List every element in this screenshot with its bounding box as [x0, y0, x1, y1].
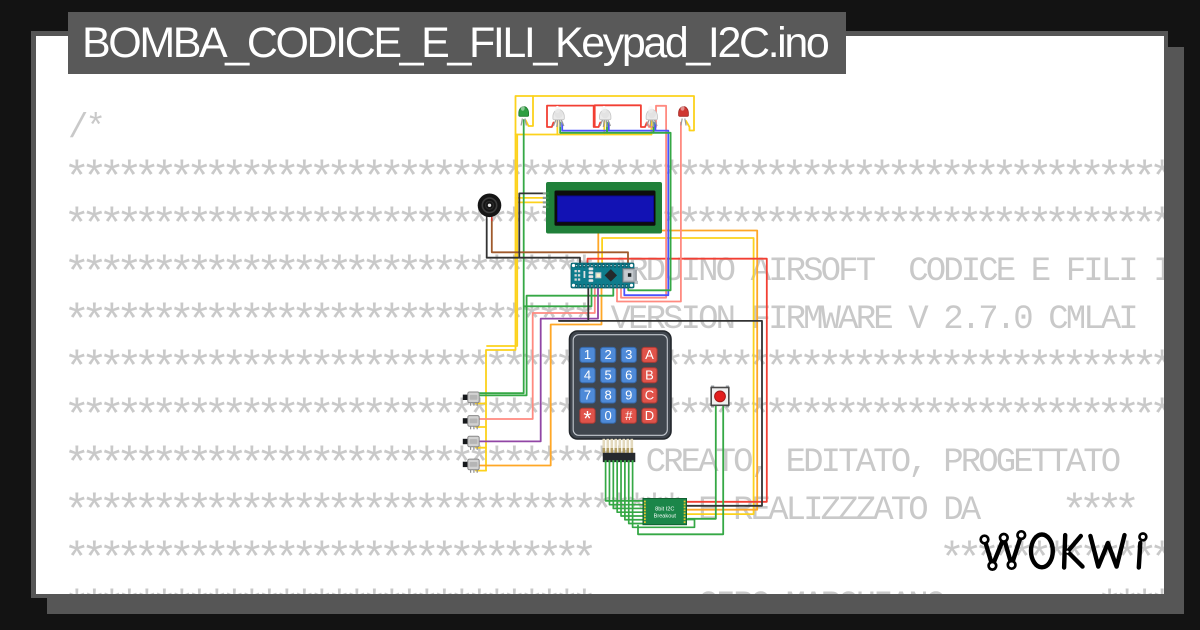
- svg-text:Breakout: Breakout: [654, 514, 677, 520]
- svg-text:3: 3: [625, 347, 632, 362]
- svg-text:D: D: [645, 408, 654, 423]
- svg-text:7: 7: [584, 388, 591, 403]
- svg-text:9: 9: [625, 388, 632, 403]
- svg-text:6: 6: [625, 367, 632, 382]
- svg-text:A: A: [645, 347, 654, 362]
- svg-text:*: *: [583, 408, 591, 431]
- svg-text:2: 2: [605, 347, 612, 362]
- svg-text:0: 0: [605, 408, 612, 423]
- svg-text:1: 1: [584, 347, 591, 362]
- svg-text:8bit I2C: 8bit I2C: [655, 507, 674, 513]
- svg-text:B: B: [645, 367, 654, 382]
- svg-text:8: 8: [605, 388, 612, 403]
- svg-text:#: #: [625, 408, 633, 423]
- svg-text:C: C: [645, 388, 654, 403]
- svg-text:5: 5: [605, 367, 612, 382]
- svg-text:4: 4: [584, 367, 591, 382]
